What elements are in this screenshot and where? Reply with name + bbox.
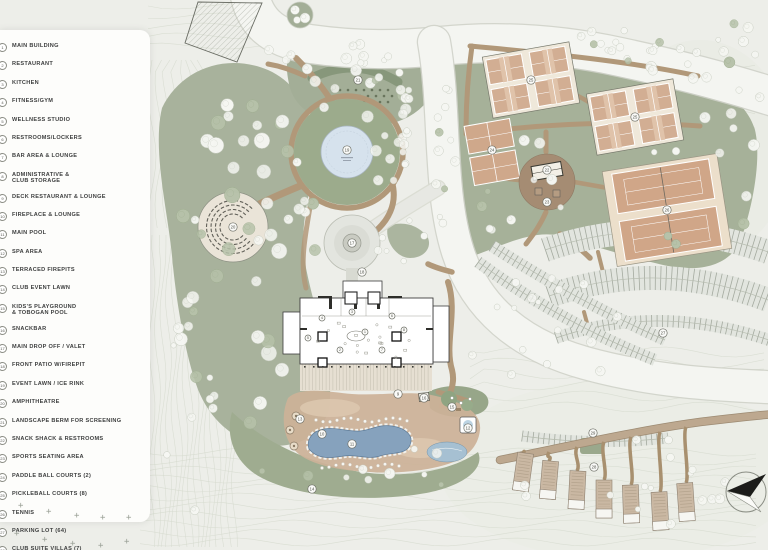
tree-icon	[692, 48, 700, 56]
shrub-dot	[347, 89, 350, 92]
tree-icon	[512, 305, 517, 310]
map-marker-25: 25	[527, 76, 535, 84]
tree-icon	[507, 215, 516, 224]
map-marker-6: 6	[389, 313, 395, 319]
marker-number: 12	[466, 426, 471, 431]
tree-icon	[331, 84, 340, 93]
column	[403, 366, 405, 368]
tree-icon	[522, 492, 531, 501]
rink-micro-label	[343, 160, 351, 161]
legend-item-label: BAR AREA & LOUNGE	[12, 153, 77, 159]
lounge-chair	[376, 464, 379, 467]
marker-number: 19	[345, 148, 350, 153]
lounge-chair	[383, 463, 386, 466]
tree-icon	[375, 73, 383, 81]
legend-item-number: 6	[0, 135, 7, 144]
tree-icon	[244, 416, 257, 429]
tree-icon	[625, 58, 632, 65]
tree-icon	[276, 115, 289, 128]
legend-item-17: 17MAIN DROP OFF / VALET	[0, 344, 144, 353]
lounge-chair	[397, 464, 400, 467]
legend-item-label: CLUB EVENT LAWN	[12, 285, 70, 291]
legend-item-8: 8ADMINISTRATIVE & CLUB STORAGE	[0, 172, 144, 184]
marker-number: 25	[529, 78, 534, 83]
legend-item-label: MAIN POOL	[12, 230, 46, 236]
tree-icon	[373, 175, 383, 185]
marker-number: 7	[381, 348, 383, 352]
corner-pavilion	[392, 358, 401, 367]
tree-icon	[527, 294, 536, 303]
tree-icon	[362, 111, 374, 123]
shrub-dot	[387, 101, 390, 104]
plaza-kiosk	[553, 190, 560, 197]
legend-item-label: MAIN DROP OFF / VALET	[12, 344, 86, 350]
tree-icon	[432, 448, 442, 458]
lounge-chair	[363, 420, 366, 423]
tree-icon	[190, 371, 202, 383]
map-marker-23: 23	[543, 198, 551, 206]
tree-icon	[310, 76, 321, 87]
lounge-chair	[348, 463, 351, 466]
legend-item-13: 13TERRACED FIREPITS	[0, 267, 144, 276]
tree-icon	[208, 137, 224, 153]
shrub-dot	[379, 89, 382, 92]
map-marker-18: 18	[358, 268, 366, 276]
survey-cross: +	[100, 514, 105, 523]
survey-cross: +	[70, 540, 75, 549]
legend-panel: 1MAIN BUILDING2RESTAURANT3KITCHEN4FITNES…	[0, 30, 150, 522]
roof-tower	[368, 292, 380, 304]
column	[385, 366, 387, 368]
tree-icon	[442, 103, 450, 111]
column	[304, 366, 306, 368]
column	[367, 366, 369, 368]
villa-deck	[679, 511, 696, 521]
tree-icon	[184, 322, 193, 331]
villa-deck	[568, 500, 584, 510]
tree-icon	[494, 304, 500, 310]
club-suite-villa-2	[539, 460, 558, 499]
tree-icon	[396, 85, 406, 95]
tree-icon	[254, 236, 263, 245]
tree-icon	[555, 286, 563, 294]
legend-item-number: 3	[0, 80, 7, 89]
lounge-chair	[334, 464, 337, 467]
tree-icon	[432, 180, 441, 189]
tree-icon	[724, 57, 735, 68]
map-marker-24: 24	[488, 146, 496, 154]
marker-number: 10	[320, 432, 325, 437]
tree-icon	[743, 22, 753, 32]
site-plan-canvas: { "legend": { "items": [ {"n":1,"label":…	[0, 0, 768, 550]
shrub-dot	[363, 89, 366, 92]
legend-item-number: 18	[0, 362, 7, 371]
tree-icon	[302, 64, 312, 74]
survey-cross: +	[18, 502, 23, 511]
tree-icon	[477, 201, 487, 211]
tree-icon	[613, 39, 619, 45]
tree-icon	[379, 235, 385, 241]
tree-icon	[635, 506, 640, 511]
legend-item-number: 15	[0, 304, 7, 313]
tree-icon	[672, 240, 681, 249]
tree-icon	[698, 496, 707, 505]
legend-item-number: 10	[0, 212, 7, 221]
tree-icon	[507, 370, 515, 378]
shrub-dot	[355, 89, 358, 92]
legend-item-number: 4	[0, 98, 7, 107]
lounge-chair	[335, 419, 338, 422]
tree-icon	[228, 162, 240, 174]
legend-item-5: 5WELLNESS STUDIO	[0, 117, 144, 126]
corner-pavilion	[318, 358, 327, 367]
legend-item-number: 2	[0, 61, 7, 70]
tree-icon	[715, 149, 724, 158]
tree-icon	[666, 453, 674, 461]
club-suite-villa-7	[677, 482, 696, 521]
survey-cross: +	[14, 530, 19, 539]
lounge-chair	[321, 420, 324, 423]
tree-icon	[222, 243, 235, 256]
wall-poche	[300, 328, 307, 330]
tree-icon	[191, 216, 199, 224]
column	[313, 366, 315, 368]
tree-icon	[197, 230, 206, 239]
tree-icon	[224, 187, 240, 203]
legend-item-label: PADDLE BALL COURTS (2)	[12, 473, 91, 479]
club-suite-villa-5	[622, 485, 639, 524]
legend-item-number: 27	[0, 528, 7, 537]
map-marker-8: 8	[401, 327, 407, 333]
tree-icon	[381, 132, 388, 139]
legend-item-label: PICKLEBALL COURTS (8)	[12, 491, 87, 497]
map-marker-7: 7	[379, 347, 385, 353]
tree-icon	[752, 51, 759, 58]
map-marker-4: 4	[319, 315, 325, 321]
tree-icon	[558, 204, 564, 210]
marker-number: 5	[307, 336, 309, 340]
tree-icon	[730, 124, 738, 132]
legend-item-25: 25PICKLEBALL COURTS (8)	[0, 491, 144, 500]
legend-item-number: 25	[0, 491, 7, 500]
tree-icon	[350, 65, 361, 76]
tree-icon	[684, 61, 691, 68]
tree-icon	[294, 17, 301, 24]
legend-item-number: 19	[0, 381, 7, 390]
marker-number: 25	[633, 115, 638, 120]
lounge-chair	[314, 418, 317, 421]
tree-icon	[294, 204, 305, 215]
legend-item-number: 14	[0, 285, 7, 294]
legend-item-label: FIREPLACE & LOUNGE	[12, 212, 80, 218]
legend-item-15: 15KIDS'S PLAYGROUND & TOBOGAN POOL	[0, 304, 144, 316]
tree-icon	[468, 351, 476, 359]
tree-icon	[543, 360, 551, 368]
tree-icon	[443, 85, 450, 92]
map-marker-17: 17	[348, 239, 356, 247]
tree-icon	[303, 471, 313, 481]
deck-patch	[300, 399, 360, 417]
lounge-chair	[390, 463, 393, 466]
survey-cross: +	[46, 508, 51, 517]
legend-item-number: 26	[0, 510, 7, 519]
tree-icon	[689, 466, 696, 473]
tree-icon	[700, 112, 711, 123]
west-wing	[283, 312, 300, 354]
tree-icon	[437, 214, 442, 219]
legend-item-number: 9	[0, 194, 7, 203]
tree-icon	[421, 232, 428, 239]
tree-icon	[188, 413, 196, 421]
tree-icon	[257, 165, 271, 179]
legend-item-label: LANDSCAPE BERM FOR SCREENING	[12, 418, 121, 424]
shrub-dot	[375, 95, 378, 98]
tree-icon	[715, 494, 725, 504]
legend-item-number: 20	[0, 399, 7, 408]
lounge-chair	[356, 418, 359, 421]
tree-icon	[656, 38, 664, 46]
tree-icon	[649, 46, 657, 54]
column	[394, 366, 396, 368]
tree-icon	[597, 40, 604, 47]
tree-icon	[448, 137, 454, 143]
tree-icon	[281, 145, 294, 158]
tree-icon	[608, 47, 616, 55]
tree-icon	[651, 149, 657, 155]
legend-item-24: 24PADDLE BALL COURTS (2)	[0, 473, 144, 482]
legend-item-label: SPA AREA	[12, 249, 42, 255]
legend-item-label: SNACKBAR	[12, 326, 46, 332]
tree-icon	[632, 436, 640, 444]
legend-item-label: RESTROOMS/LOCKERS	[12, 135, 82, 141]
legend-item-16: 16SNACKBAR	[0, 326, 144, 335]
legend-list: 1MAIN BUILDING2RESTAURANT3KITCHEN4FITNES…	[0, 43, 144, 550]
legend-item-label: AMPHITHEATRE	[12, 399, 60, 405]
tree-icon	[221, 99, 234, 112]
tree-icon	[485, 189, 491, 195]
plaza-kiosk	[535, 188, 542, 195]
east-wing	[433, 306, 449, 362]
marker-number: 29	[591, 431, 596, 436]
tree-icon	[512, 279, 520, 287]
marker-number: 4	[321, 316, 323, 320]
tree-icon	[400, 149, 407, 156]
marker-number: 8	[403, 328, 405, 332]
map-marker-28: 28	[590, 463, 598, 471]
marker-number: 1	[364, 330, 366, 334]
tree-icon	[253, 396, 266, 409]
tree-icon	[251, 276, 261, 286]
tree-icon	[264, 45, 273, 54]
survey-cross: +	[98, 542, 103, 550]
tree-icon	[534, 138, 545, 149]
tree-icon	[374, 246, 382, 254]
playground-mound	[461, 399, 473, 411]
map-marker-1: 1	[362, 329, 368, 335]
tree-icon	[164, 452, 171, 459]
tree-icon	[590, 41, 597, 48]
tree-icon	[405, 95, 413, 103]
tree-icon	[211, 116, 225, 130]
tree-icon	[730, 20, 738, 28]
marker-number: 18	[360, 270, 365, 275]
tree-icon	[536, 299, 541, 304]
tree-icon	[190, 506, 199, 515]
survey-cross: +	[126, 514, 131, 523]
column	[421, 366, 423, 368]
legend-item-number: 7	[0, 153, 7, 162]
lounge-chair	[349, 416, 352, 419]
legend-item-2: 2RESTAURANT	[0, 61, 144, 70]
marker-number: 3	[351, 310, 353, 314]
map-marker-5: 5	[305, 335, 311, 341]
tree-icon	[736, 87, 742, 93]
legend-item-number: 24	[0, 473, 7, 482]
map-marker-14: 14	[308, 485, 316, 493]
tree-icon	[343, 475, 349, 481]
play-equipment	[469, 398, 472, 401]
tree-icon	[207, 375, 213, 381]
club-suite-villa-3	[568, 471, 586, 510]
map-marker-27: 27	[659, 329, 667, 337]
tree-icon	[398, 109, 408, 119]
tree-icon	[688, 73, 698, 83]
tree-icon	[546, 174, 557, 185]
tree-icon	[173, 323, 184, 334]
tree-icon	[672, 147, 680, 155]
legend-item-7: 7BAR AREA & LOUNGE	[0, 153, 144, 162]
tree-icon	[365, 476, 372, 483]
legend-item-1: 1MAIN BUILDING	[0, 43, 144, 52]
tree-icon	[349, 42, 357, 50]
tree-icon	[726, 108, 736, 118]
tree-icon	[407, 218, 413, 224]
tree-icon	[716, 37, 721, 42]
marker-number: 28	[592, 465, 597, 470]
marker-number: 22	[545, 168, 550, 173]
legend-item-number: 17	[0, 344, 7, 353]
legend-item-number: 11	[0, 230, 7, 239]
tree-icon	[209, 404, 218, 413]
tree-icon	[666, 519, 675, 528]
lounge-chair	[320, 466, 323, 469]
marker-number: 13	[298, 417, 303, 422]
map-marker-26: 26	[663, 206, 671, 214]
map-marker-22: 22	[543, 166, 551, 174]
tree-icon	[738, 218, 749, 229]
tree-icon	[171, 343, 176, 348]
legend-item-number: 23	[0, 454, 7, 463]
play-equipment	[451, 397, 454, 400]
tree-icon	[664, 232, 672, 240]
lounge-chair	[355, 465, 358, 468]
tree-icon	[293, 158, 301, 166]
legend-item-number: 28	[0, 546, 7, 550]
lounge-chair	[370, 420, 373, 423]
legend-item-label: ADMINISTRATIVE & CLUB STORAGE	[12, 172, 70, 184]
marker-number: 20	[231, 225, 236, 230]
legend-item-number: 22	[0, 436, 7, 445]
tree-icon	[755, 93, 764, 102]
tree-icon	[738, 36, 748, 46]
map-marker-11: 11	[348, 440, 356, 448]
tree-icon	[721, 478, 730, 487]
legend-item-number: 1	[0, 43, 7, 52]
tree-icon	[586, 337, 596, 347]
column	[340, 366, 342, 368]
column	[322, 366, 324, 368]
legend-item-label: KITCHEN	[12, 80, 39, 86]
map-marker-21: 21	[354, 76, 362, 84]
lounge-chair	[342, 417, 345, 420]
firepit-flame	[293, 445, 295, 447]
tree-icon	[648, 66, 658, 76]
legend-item-label: MAIN BUILDING	[12, 43, 59, 49]
column	[376, 366, 378, 368]
tree-icon	[271, 243, 287, 259]
tree-icon	[261, 198, 273, 210]
map-marker-13: 13	[296, 415, 304, 423]
map-marker-15: 15	[448, 403, 456, 411]
lounge-chair	[377, 419, 380, 422]
marker-number: 21	[356, 78, 361, 83]
tree-icon	[238, 135, 249, 146]
tree-icon	[243, 222, 255, 234]
tree-icon	[358, 60, 364, 66]
lounge-chair	[405, 419, 408, 422]
tree-icon	[486, 225, 494, 233]
column	[412, 366, 414, 368]
map-marker-2: 2	[337, 347, 343, 353]
firepit-flame	[289, 429, 291, 431]
legend-item-19: 19EVENT LAWN / ICE RINK	[0, 381, 144, 390]
legend-item-10: 10FIREPLACE & LOUNGE	[0, 212, 144, 221]
map-marker-20: 20	[229, 223, 237, 231]
map-marker-9: 9	[394, 390, 402, 398]
legend-item-label: SPORTS SEATING AREA	[12, 454, 84, 460]
legend-item-11: 11MAIN POOL	[0, 230, 144, 239]
legend-item-23: 23SPORTS SEATING AREA	[0, 454, 144, 463]
tree-icon	[676, 45, 684, 53]
map-marker-19: 19	[343, 146, 351, 154]
tree-icon	[254, 133, 270, 149]
lounge-chair	[328, 420, 331, 423]
tree-icon	[613, 312, 622, 321]
tree-icon	[390, 177, 397, 184]
lounge-chair	[398, 417, 401, 420]
tree-icon	[411, 446, 418, 453]
map-marker-29: 29	[589, 429, 597, 437]
lounge-chair	[369, 466, 372, 469]
lounge-chair	[391, 416, 394, 419]
legend-item-label: DECK RESTAURANT & LOUNGE	[12, 194, 106, 200]
tree-icon	[253, 121, 262, 130]
legend-item-21: 21LANDSCAPE BERM FOR SCREENING	[0, 418, 144, 427]
tree-icon	[300, 13, 310, 23]
marker-number: 23	[545, 200, 550, 205]
column	[349, 366, 351, 368]
legend-item-9: 9DECK RESTAURANT & LOUNGE	[0, 194, 144, 203]
legend-item-4: 4FITNESS/GYM	[0, 98, 144, 107]
map-marker-10: 10	[318, 430, 326, 438]
tree-icon	[287, 51, 295, 59]
legend-item-label: PARKING LOT (64)	[12, 528, 66, 534]
marker-number: 6	[391, 314, 393, 318]
legend-item-27: 27PARKING LOT (64)	[0, 528, 144, 537]
map-marker-12: 12	[464, 424, 472, 432]
shrub-dot	[371, 89, 374, 92]
marker-number: 24	[490, 148, 495, 153]
